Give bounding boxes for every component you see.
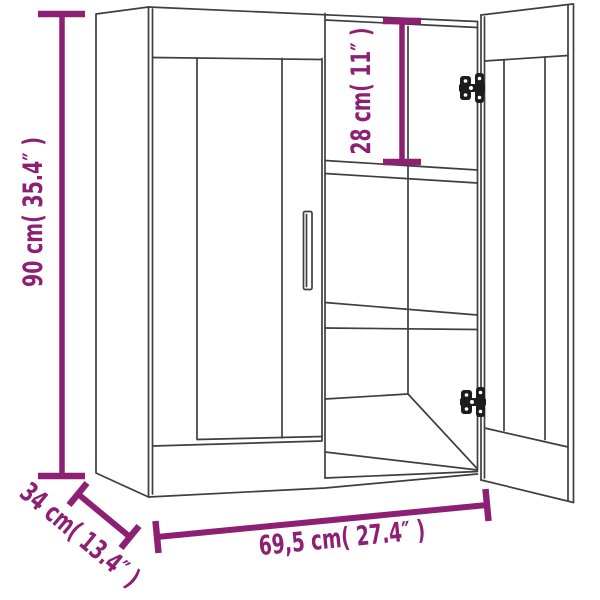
bottom-front-edge: [149, 474, 478, 497]
left-door-outline: [153, 58, 322, 447]
height-dimension: 90 cm( 35.4″ ): [18, 14, 85, 476]
open-door-panel-lines: [504, 57, 545, 440]
bottom-apron-line: [325, 472, 478, 479]
depth-dimension: 34 cm( 13.4″ ): [14, 477, 146, 594]
left-side-panel: [96, 7, 149, 497]
front-left-edge: [149, 7, 153, 497]
width-dimension: 69,5 cm( 27.4″ ): [156, 489, 489, 562]
hinges: [459, 73, 486, 417]
hinge-icon: [459, 73, 485, 103]
top-front-edge: [149, 7, 478, 22]
open-door: [481, 4, 574, 503]
left-door: [153, 58, 322, 447]
diagram-stage: 90 cm( 35.4″ ) 28 cm( 11″ ) 69,5 cm( 27.…: [0, 0, 600, 600]
door-handle: [304, 212, 313, 290]
top-compartment-dimension: 28 cm( 11″ ): [346, 21, 421, 162]
height-dimension-label: 90 cm( 35.4″ ): [18, 137, 49, 287]
cabinet-dimension-diagram: 90 cm( 35.4″ ) 28 cm( 11″ ) 69,5 cm( 27.…: [0, 0, 600, 600]
open-door-free-edge: [568, 4, 574, 503]
lower-shelf: [325, 303, 478, 330]
open-door-rails: [485, 56, 569, 448]
top-compartment-dimension-label: 28 cm( 11″ ): [346, 28, 377, 155]
cabinet-drawing: [96, 4, 574, 503]
interior-back-bottom-edge: [325, 394, 408, 399]
hinge-icon: [460, 387, 486, 417]
open-door-top-edge: [481, 4, 573, 15]
open-door-bottom-edge: [481, 480, 574, 503]
dimension-annotations: 90 cm( 35.4″ ) 28 cm( 11″ ) 69,5 cm( 27.…: [14, 14, 489, 594]
interior-floor-front-edge: [325, 452, 478, 470]
cabinet-body: [96, 7, 478, 497]
